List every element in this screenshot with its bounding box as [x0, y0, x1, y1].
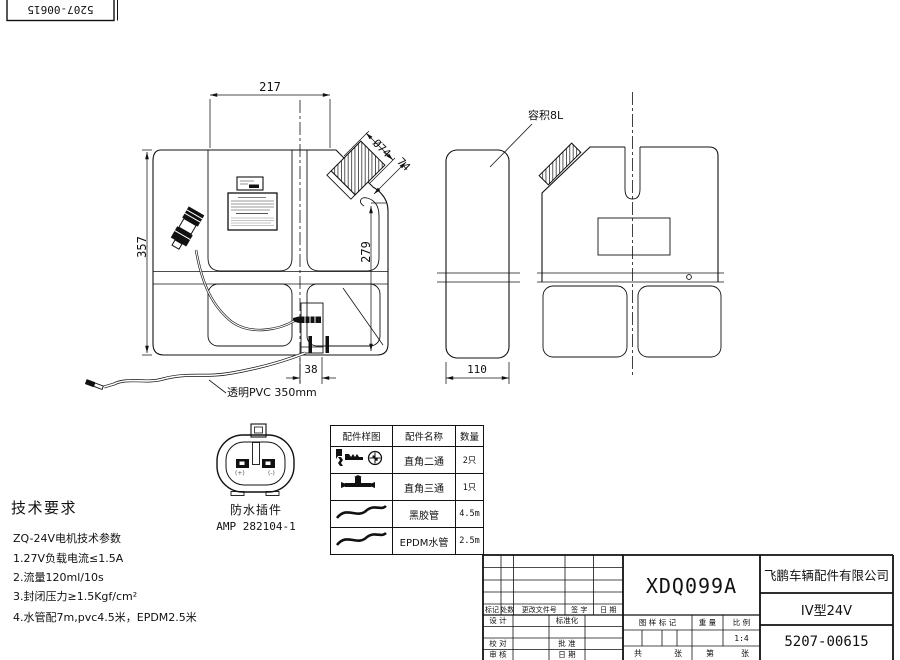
tech-requirements-title: 技术要求: [11, 497, 77, 518]
tube-leader: [209, 380, 226, 393]
side-view: [437, 150, 520, 358]
connector-detail-graphic: [217, 424, 294, 496]
tube-callout: 透明PVC 350mm: [227, 384, 317, 400]
parts-table: 配件样图 配件名称 数量 直角二通 2只: [330, 425, 484, 555]
tb-label-date2: 日 期: [549, 650, 585, 660]
parts-table-row: 直角三通 1只: [331, 474, 484, 501]
small-label-plate: [237, 177, 263, 190]
tech-requirement-item: 2.流量120ml/10s: [13, 569, 104, 585]
tb-label-proofread: 校 对: [483, 638, 513, 650]
title-block-model: IV型24V: [760, 593, 893, 625]
dimensions: [142, 95, 532, 393]
tech-requirements-subtitle: ZQ-24V电机技术参数: [13, 530, 121, 546]
engineering-drawing-sheet: { "corner_stamp": { "part_no": "5207-006…: [0, 0, 900, 660]
col-header-name: 配件名称: [393, 426, 456, 447]
tech-requirement-item: 4.水管配7m,pvc4.5米，EPDM2.5米: [13, 609, 197, 625]
wire-connector: [168, 206, 205, 251]
dim-overall-height: 357: [135, 233, 149, 261]
col-header-qty: 数量: [456, 426, 484, 447]
dim-right-height: 279: [359, 238, 373, 266]
parts-table-row: EPDM水管 2.5m: [331, 528, 484, 555]
tb-label-mark: 标记: [483, 604, 501, 615]
capacity-leader: [490, 124, 532, 167]
tb-label-approve: 批 准: [549, 638, 585, 650]
capacity-callout: 容积8L: [528, 107, 563, 123]
tb-scale-value: 1:4: [723, 630, 760, 646]
tb-label-change-doc: 更改文件号: [514, 604, 566, 615]
tb-label-total: 共: [628, 646, 648, 660]
tb-label-date: 日 期: [594, 604, 624, 615]
tb-label-qty: 处数: [501, 604, 514, 615]
dim-top-width: 217: [252, 80, 288, 94]
large-label-plate: [228, 193, 277, 230]
parts-table-row: 黑胶管 4.5m: [331, 501, 484, 528]
tb-label-review: 审 核: [483, 650, 513, 660]
hose-curve-icon: [333, 501, 390, 523]
dim-outlet-width: 38: [297, 363, 325, 376]
tb-label-sign: 签 字: [565, 604, 594, 615]
connector-plus-label: (+): [235, 470, 245, 477]
hose-curve-icon: [333, 528, 390, 550]
tech-requirement-item: 1.27V负载电流≤1.5A: [13, 550, 123, 566]
filler-neck-rear: [539, 143, 581, 185]
col-header-sample: 配件样图: [331, 426, 393, 447]
parts-table-header-row: 配件样图 配件名称 数量: [331, 426, 484, 447]
tb-label-design: 设 计: [483, 615, 513, 627]
tb-label-scale: 比 例: [723, 615, 760, 630]
right-angle-three-way-fitting-icon: [333, 474, 390, 496]
rear-view: [537, 92, 724, 378]
corner-stamp-part-number: 5207-00615: [7, 0, 114, 20]
pump-outlet: [293, 303, 329, 353]
connector-caption: 防水插件: [216, 502, 296, 516]
tb-label-weight: 重 量: [692, 615, 723, 630]
title-block-part-number: 5207-00615: [760, 625, 893, 658]
tb-label-no: 第: [700, 646, 720, 660]
tb-label-drawing-mark: 图 样 标 记: [623, 615, 692, 630]
parts-table-row: 直角二通 2只: [331, 447, 484, 474]
title-block-drawing-code: XDQ099A: [623, 557, 760, 614]
title-block-company: 飞鹏车辆配件有限公司: [760, 556, 893, 593]
tb-label-standardization: 标准化: [549, 615, 585, 627]
right-angle-two-way-fitting-icon: [333, 447, 390, 469]
dim-side-width: 110: [459, 363, 495, 376]
front-view: [85, 100, 388, 390]
wire: [196, 250, 294, 330]
tb-label-sheets: 张: [668, 646, 688, 660]
tb-label-sheet2: 张: [735, 646, 755, 660]
tech-requirement-item: 3.封闭压力≥1.5Kgf/cm²: [13, 588, 137, 604]
connector-minus-label: (-): [268, 470, 275, 477]
connector-model: AMP 282104-1: [206, 520, 306, 533]
